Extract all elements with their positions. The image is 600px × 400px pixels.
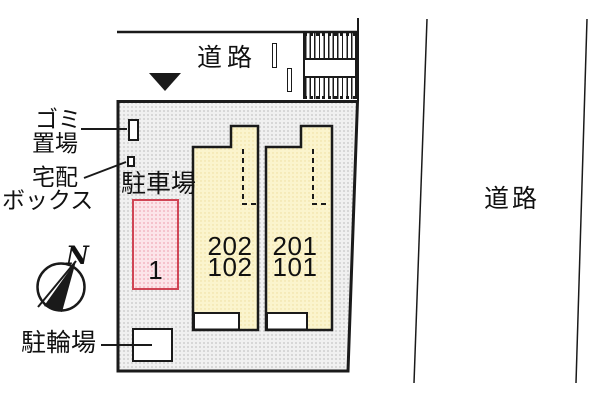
delivery-label-line2: ボックス — [2, 188, 93, 212]
building-unit-202-102 — [193, 126, 258, 330]
bicycle-parking-label: 駐輪場 — [21, 330, 96, 356]
unit-201-entrance — [267, 313, 307, 330]
garbage-label-line1: ゴミ — [35, 107, 81, 131]
right-road-west-edge — [414, 19, 427, 383]
garbage-label-line2: 置場 — [32, 131, 78, 155]
unit-202-entrance — [194, 313, 239, 330]
right-road-east-edge — [576, 19, 587, 383]
right-road-label: 道路 — [484, 186, 540, 212]
entrance-arrow-icon — [149, 73, 181, 91]
delivery-leader-line — [84, 162, 126, 178]
unit-201-lower: 101 — [258, 257, 332, 278]
site-plan: 1 道路 道路 ゴミ 置場 宅配 ボックス 駐車場 駐輪場 N 202 102 … — [0, 0, 600, 400]
unit-201-101-label: 201 101 — [258, 236, 332, 277]
top-road-label: 道路 — [197, 45, 257, 71]
delivery-label-line1: 宅配 — [32, 165, 78, 189]
building-unit-201-101 — [266, 126, 332, 330]
compass-north-label: N — [66, 243, 89, 269]
parking-area-label: 駐車場 — [121, 171, 196, 197]
